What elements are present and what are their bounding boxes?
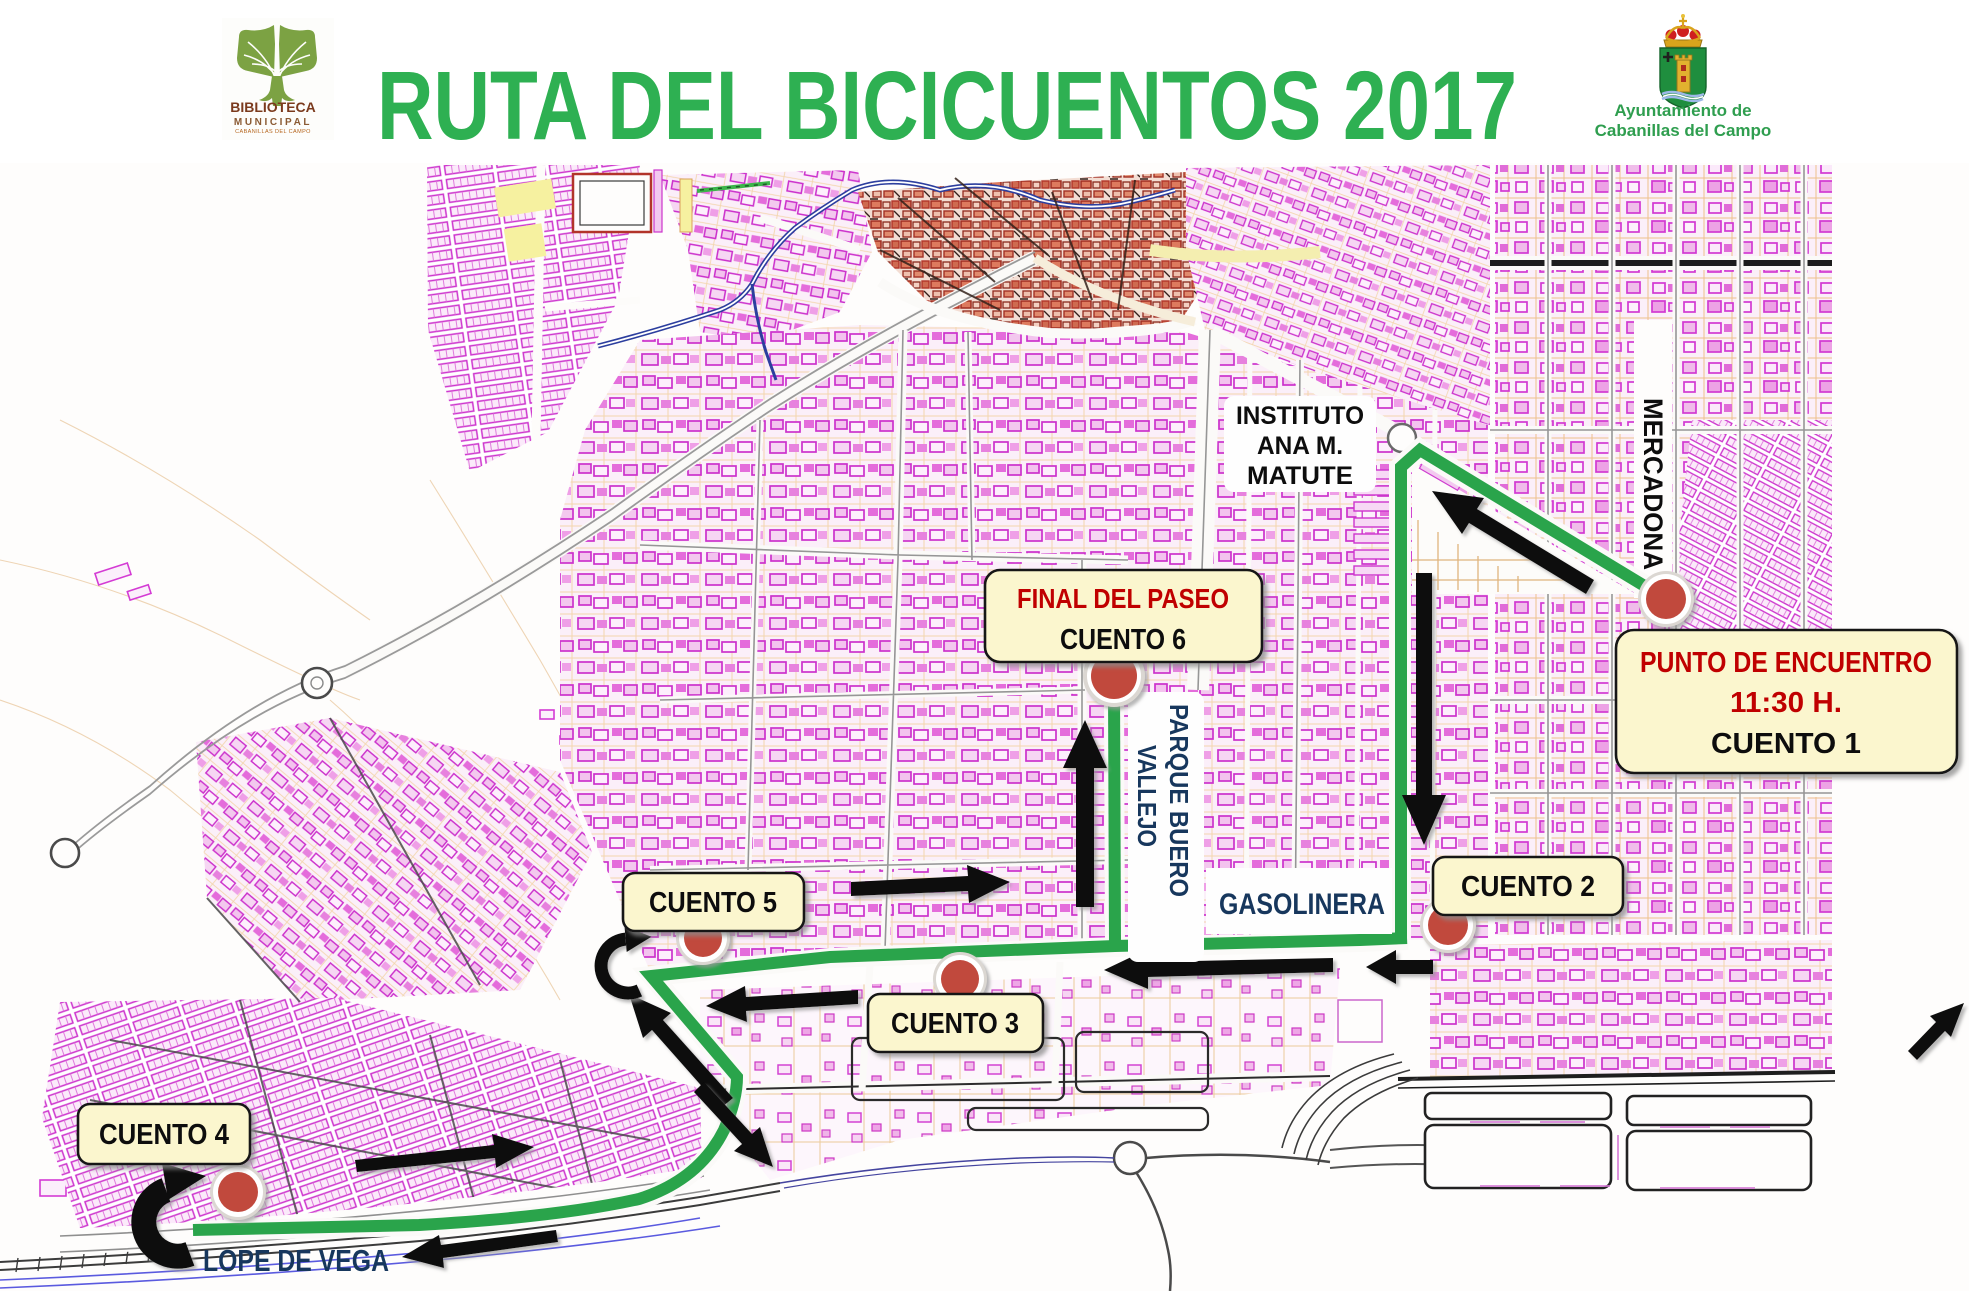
- svg-text:ANA M.: ANA M.: [1257, 432, 1343, 460]
- svg-text:Ayuntamiento de: Ayuntamiento de: [1614, 101, 1751, 120]
- svg-text:LOPE DE VEGA: LOPE DE VEGA: [203, 1243, 389, 1278]
- svg-text:VALLEJO: VALLEJO: [1132, 745, 1162, 847]
- svg-text:Cabanillas del Campo: Cabanillas del Campo: [1595, 121, 1772, 140]
- svg-text:INSTITUTO: INSTITUTO: [1236, 402, 1364, 430]
- svg-text:MERCADONA: MERCADONA: [1638, 398, 1668, 570]
- svg-text:BIBLIOTECA: BIBLIOTECA: [230, 99, 316, 115]
- svg-text:CUENTO 2: CUENTO 2: [1461, 871, 1595, 903]
- svg-text:CABANILLAS DEL CAMPO: CABANILLAS DEL CAMPO: [235, 129, 311, 135]
- svg-text:CUENTO 6: CUENTO 6: [1060, 624, 1186, 656]
- svg-text:PUNTO DE ENCUENTRO: PUNTO DE ENCUENTRO: [1640, 647, 1932, 679]
- svg-text:CUENTO 1: CUENTO 1: [1711, 728, 1861, 760]
- svg-text:MUNICIPAL: MUNICIPAL: [234, 117, 312, 128]
- svg-text:CUENTO 3: CUENTO 3: [891, 1008, 1019, 1040]
- svg-text:CUENTO 5: CUENTO 5: [649, 887, 777, 919]
- svg-text:MATUTE: MATUTE: [1247, 462, 1353, 490]
- svg-text:GASOLINERA: GASOLINERA: [1219, 888, 1385, 921]
- svg-text:RUTA DEL BICICUENTOS 2017: RUTA DEL BICICUENTOS 2017: [377, 51, 1517, 160]
- svg-text:FINAL DEL PASEO: FINAL DEL PASEO: [1017, 583, 1229, 614]
- svg-text:CUENTO 4: CUENTO 4: [99, 1119, 229, 1151]
- svg-text:PARQUE BUERO: PARQUE BUERO: [1164, 704, 1194, 897]
- svg-text:11:30 H.: 11:30 H.: [1730, 687, 1842, 719]
